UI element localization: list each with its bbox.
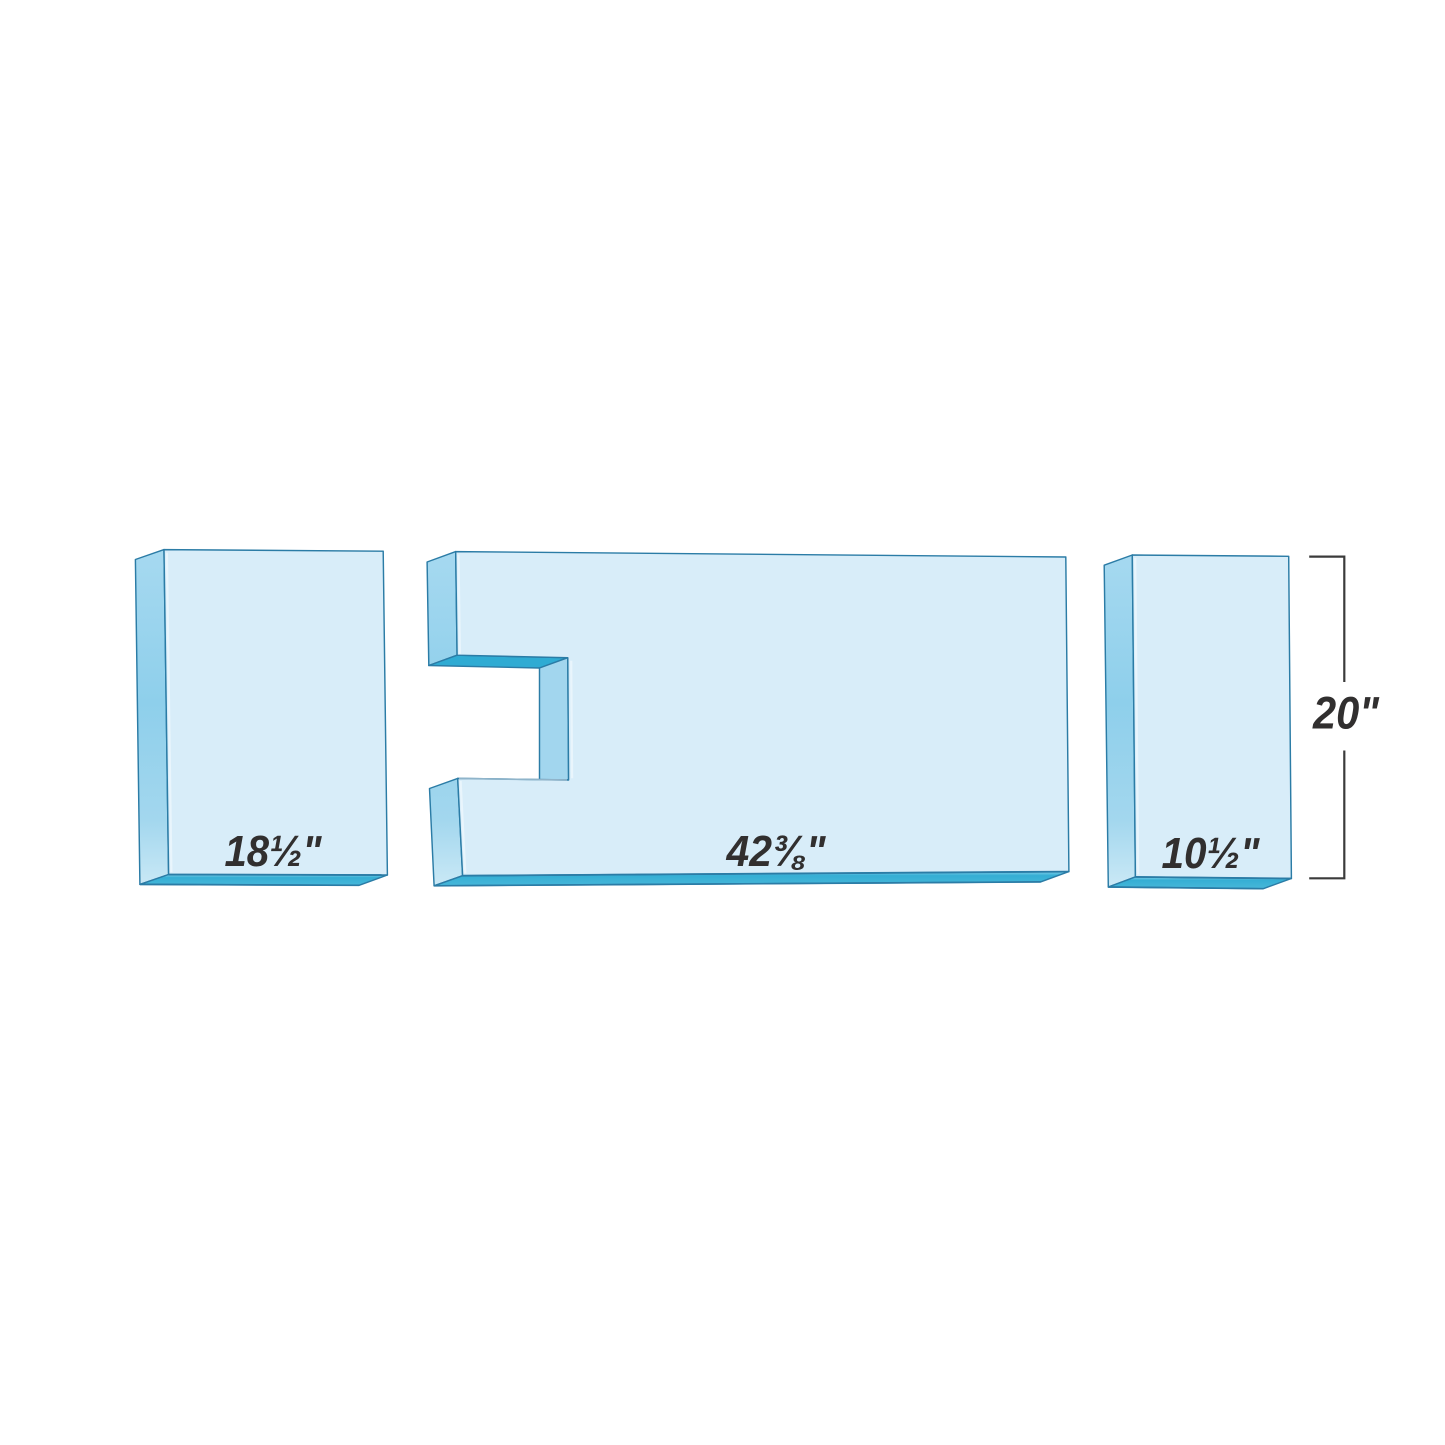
svg-text:20": 20" — [1312, 687, 1380, 738]
svg-text:10½": 10½" — [1162, 829, 1261, 878]
svg-text:18½": 18½" — [225, 827, 323, 876]
svg-text:42⅜": 42⅜" — [726, 827, 827, 876]
